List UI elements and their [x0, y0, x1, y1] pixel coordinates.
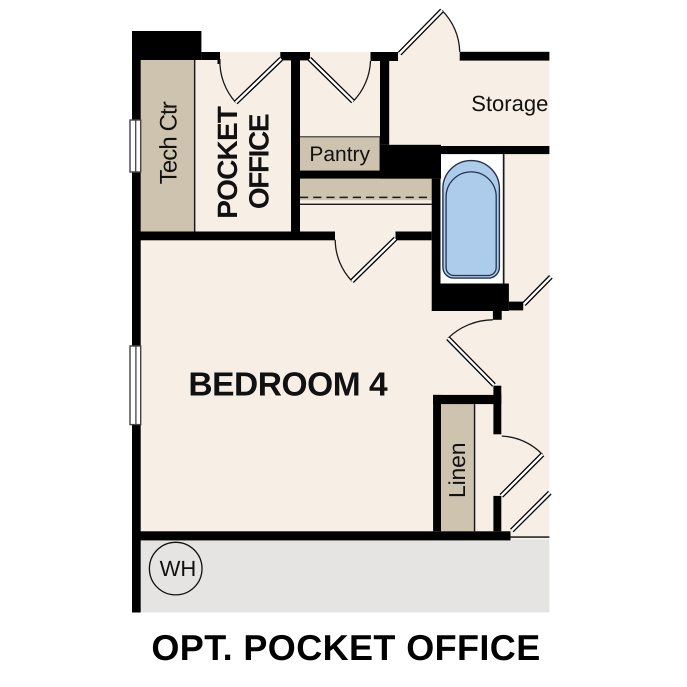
svg-text:OPT. POCKET OFFICE: OPT. POCKET OFFICE [151, 627, 540, 668]
svg-text:Linen: Linen [444, 443, 470, 498]
svg-text:POCKET: POCKET [212, 106, 243, 219]
svg-text:Tech Ctr: Tech Ctr [155, 101, 182, 184]
svg-text:WH: WH [160, 556, 197, 581]
svg-text:Pantry: Pantry [309, 143, 370, 166]
svg-text:Storage: Storage [471, 91, 548, 116]
svg-text:OFFICE: OFFICE [243, 114, 274, 209]
svg-text:BEDROOM 4: BEDROOM 4 [188, 367, 388, 404]
